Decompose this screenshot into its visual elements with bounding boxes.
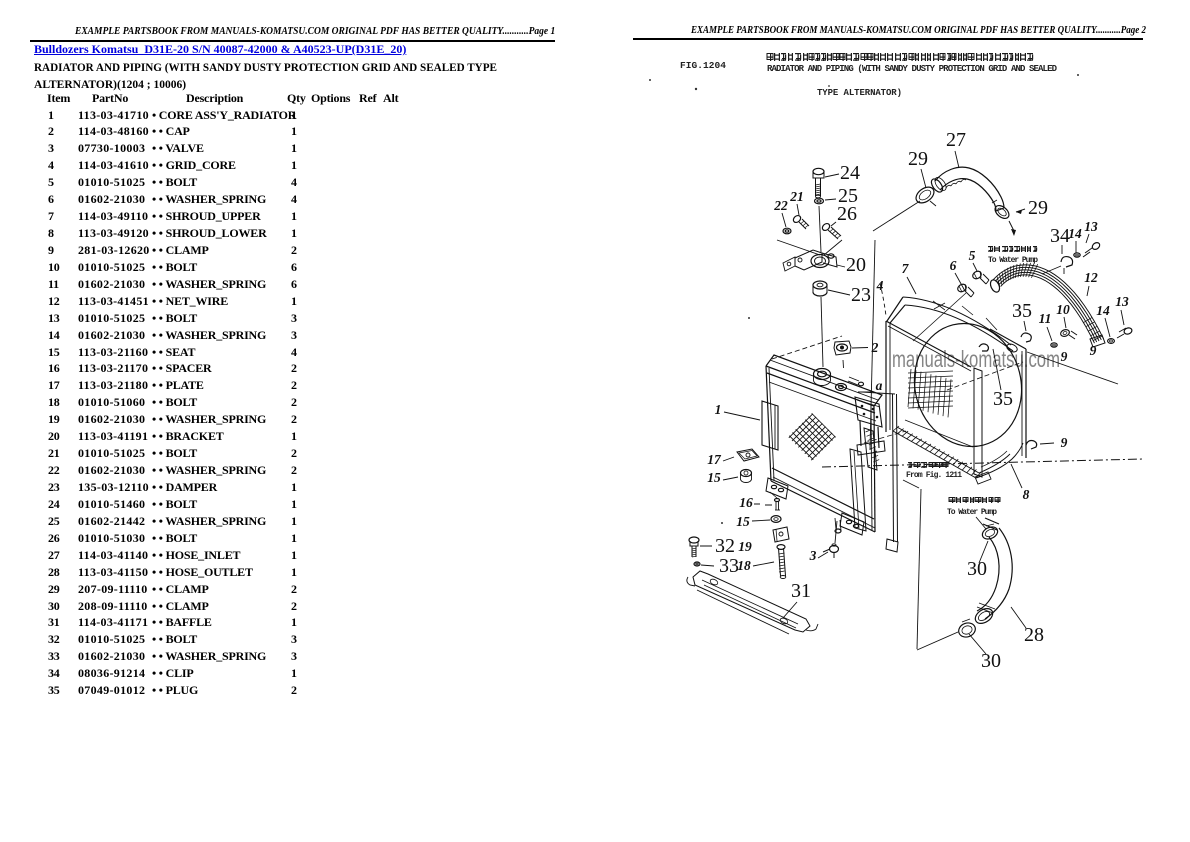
svg-text:7: 7 — [902, 261, 910, 276]
svg-text:33: 33 — [719, 555, 739, 577]
svg-text:3: 3 — [809, 548, 817, 563]
svg-text:16: 16 — [739, 495, 753, 510]
svg-text:17: 17 — [707, 452, 722, 467]
svg-text:14: 14 — [1068, 226, 1082, 241]
svg-text:26: 26 — [837, 203, 857, 225]
svg-text:8: 8 — [1023, 487, 1030, 502]
svg-text:9: 9 — [1090, 343, 1097, 358]
svg-text:22: 22 — [773, 198, 788, 213]
svg-text:RADIATOR AND PIPING (WITH SAND: RADIATOR AND PIPING (WITH SANDY DUSTY PR… — [767, 64, 1058, 74]
svg-text:To Water Pump: To Water Pump — [947, 508, 997, 517]
svg-text:FIG.1204: FIG.1204 — [680, 60, 726, 71]
svg-text:15: 15 — [707, 470, 721, 485]
svg-text:32: 32 — [715, 535, 735, 557]
svg-text:13: 13 — [1084, 219, 1098, 234]
svg-text:19: 19 — [738, 539, 752, 554]
svg-text:a: a — [876, 378, 883, 393]
svg-text:12: 12 — [1084, 270, 1098, 285]
svg-text:28: 28 — [1024, 624, 1044, 646]
svg-text:manuals-komatsu.com: manuals-komatsu.com — [892, 346, 1060, 372]
svg-text:29: 29 — [1028, 197, 1048, 219]
svg-text:11: 11 — [1039, 311, 1052, 326]
svg-text:9: 9 — [1061, 349, 1068, 364]
svg-text:6: 6 — [950, 258, 957, 273]
svg-text:From Fig. 1211: From Fig. 1211 — [906, 471, 962, 480]
svg-text:29: 29 — [908, 148, 928, 170]
svg-text:35: 35 — [993, 388, 1013, 410]
svg-text:35: 35 — [1012, 300, 1032, 322]
svg-text:20: 20 — [846, 254, 866, 276]
svg-text:30: 30 — [967, 558, 987, 580]
svg-text:24: 24 — [840, 162, 860, 184]
svg-text:21: 21 — [789, 189, 804, 204]
svg-text:18: 18 — [737, 558, 751, 573]
svg-text:2: 2 — [871, 340, 879, 355]
svg-text:TYPE ALTERNATOR): TYPE ALTERNATOR) — [817, 88, 902, 98]
svg-text:30: 30 — [981, 650, 1001, 672]
svg-text:27: 27 — [946, 129, 966, 151]
svg-text:15: 15 — [736, 514, 750, 529]
svg-text:10: 10 — [1056, 302, 1070, 317]
svg-text:34: 34 — [1050, 225, 1070, 247]
svg-text:13: 13 — [1115, 294, 1129, 309]
svg-text:14: 14 — [1096, 303, 1110, 318]
svg-text:5: 5 — [969, 248, 976, 263]
svg-text:9: 9 — [1061, 435, 1068, 450]
svg-text:1: 1 — [715, 402, 722, 417]
svg-text:23: 23 — [851, 284, 871, 306]
svg-text:4: 4 — [876, 278, 884, 293]
svg-text:31: 31 — [791, 580, 811, 602]
